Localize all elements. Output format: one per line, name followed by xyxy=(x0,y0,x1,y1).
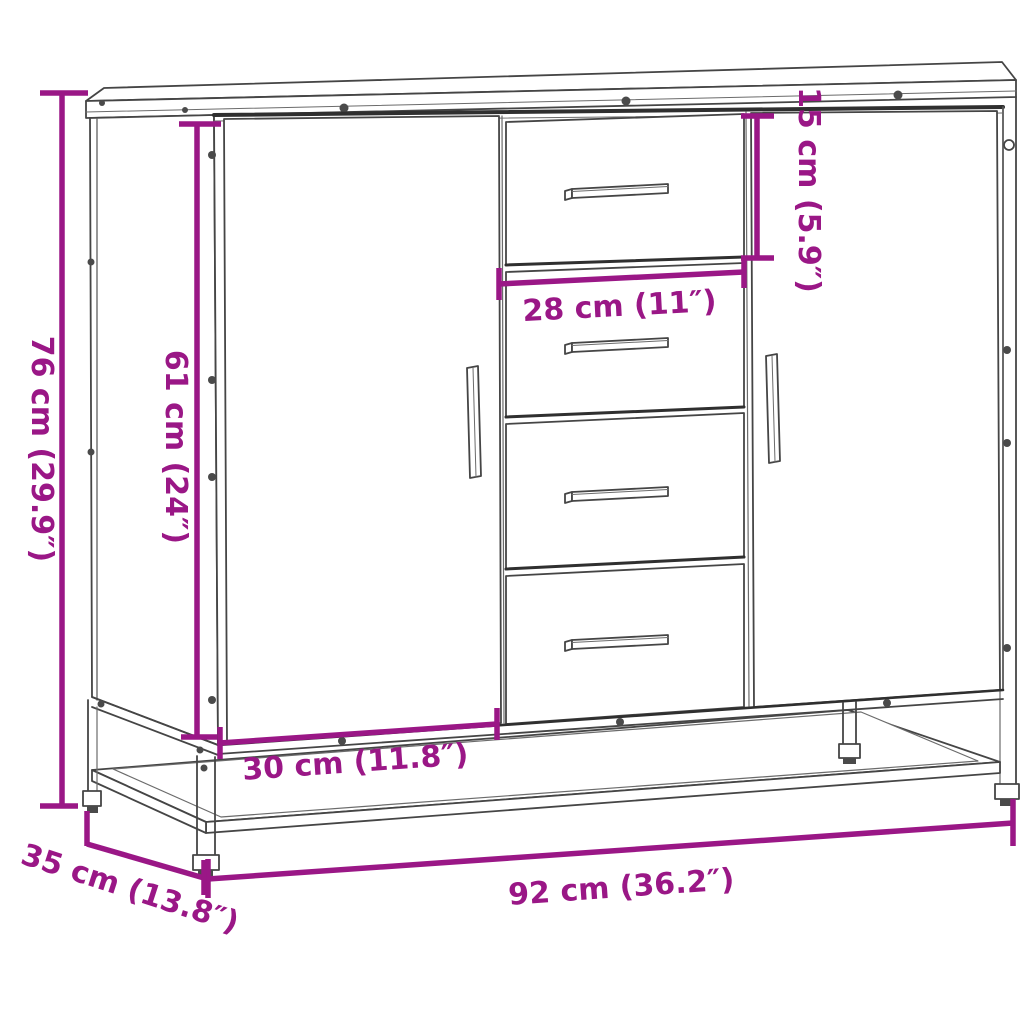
left-door xyxy=(224,116,501,741)
dimension-label-overall-width: 92 cm (36.2″) xyxy=(507,862,735,913)
dimension-overall-height: 76 cm (29.9″) xyxy=(24,93,88,806)
right-door-handle xyxy=(766,354,780,463)
dimension-label-overall-height: 76 cm (29.9″) xyxy=(24,336,59,563)
sideboard-diagram-svg: 76 cm (29.9″) 61 cm (24″) 15 cm (5.9″) 2… xyxy=(0,0,1024,1024)
dimension-diagram: 76 cm (29.9″) 61 cm (24″) 15 cm (5.9″) 2… xyxy=(0,0,1024,1024)
right-door xyxy=(751,111,1000,707)
dimension-label-top-drawer-height: 15 cm (5.9″) xyxy=(791,87,826,293)
dimension-label-door-height: 61 cm (24″) xyxy=(158,350,193,544)
cabinet-line-art xyxy=(83,62,1019,877)
right-frame-post xyxy=(1000,97,1016,786)
left-door-handle xyxy=(467,366,481,478)
